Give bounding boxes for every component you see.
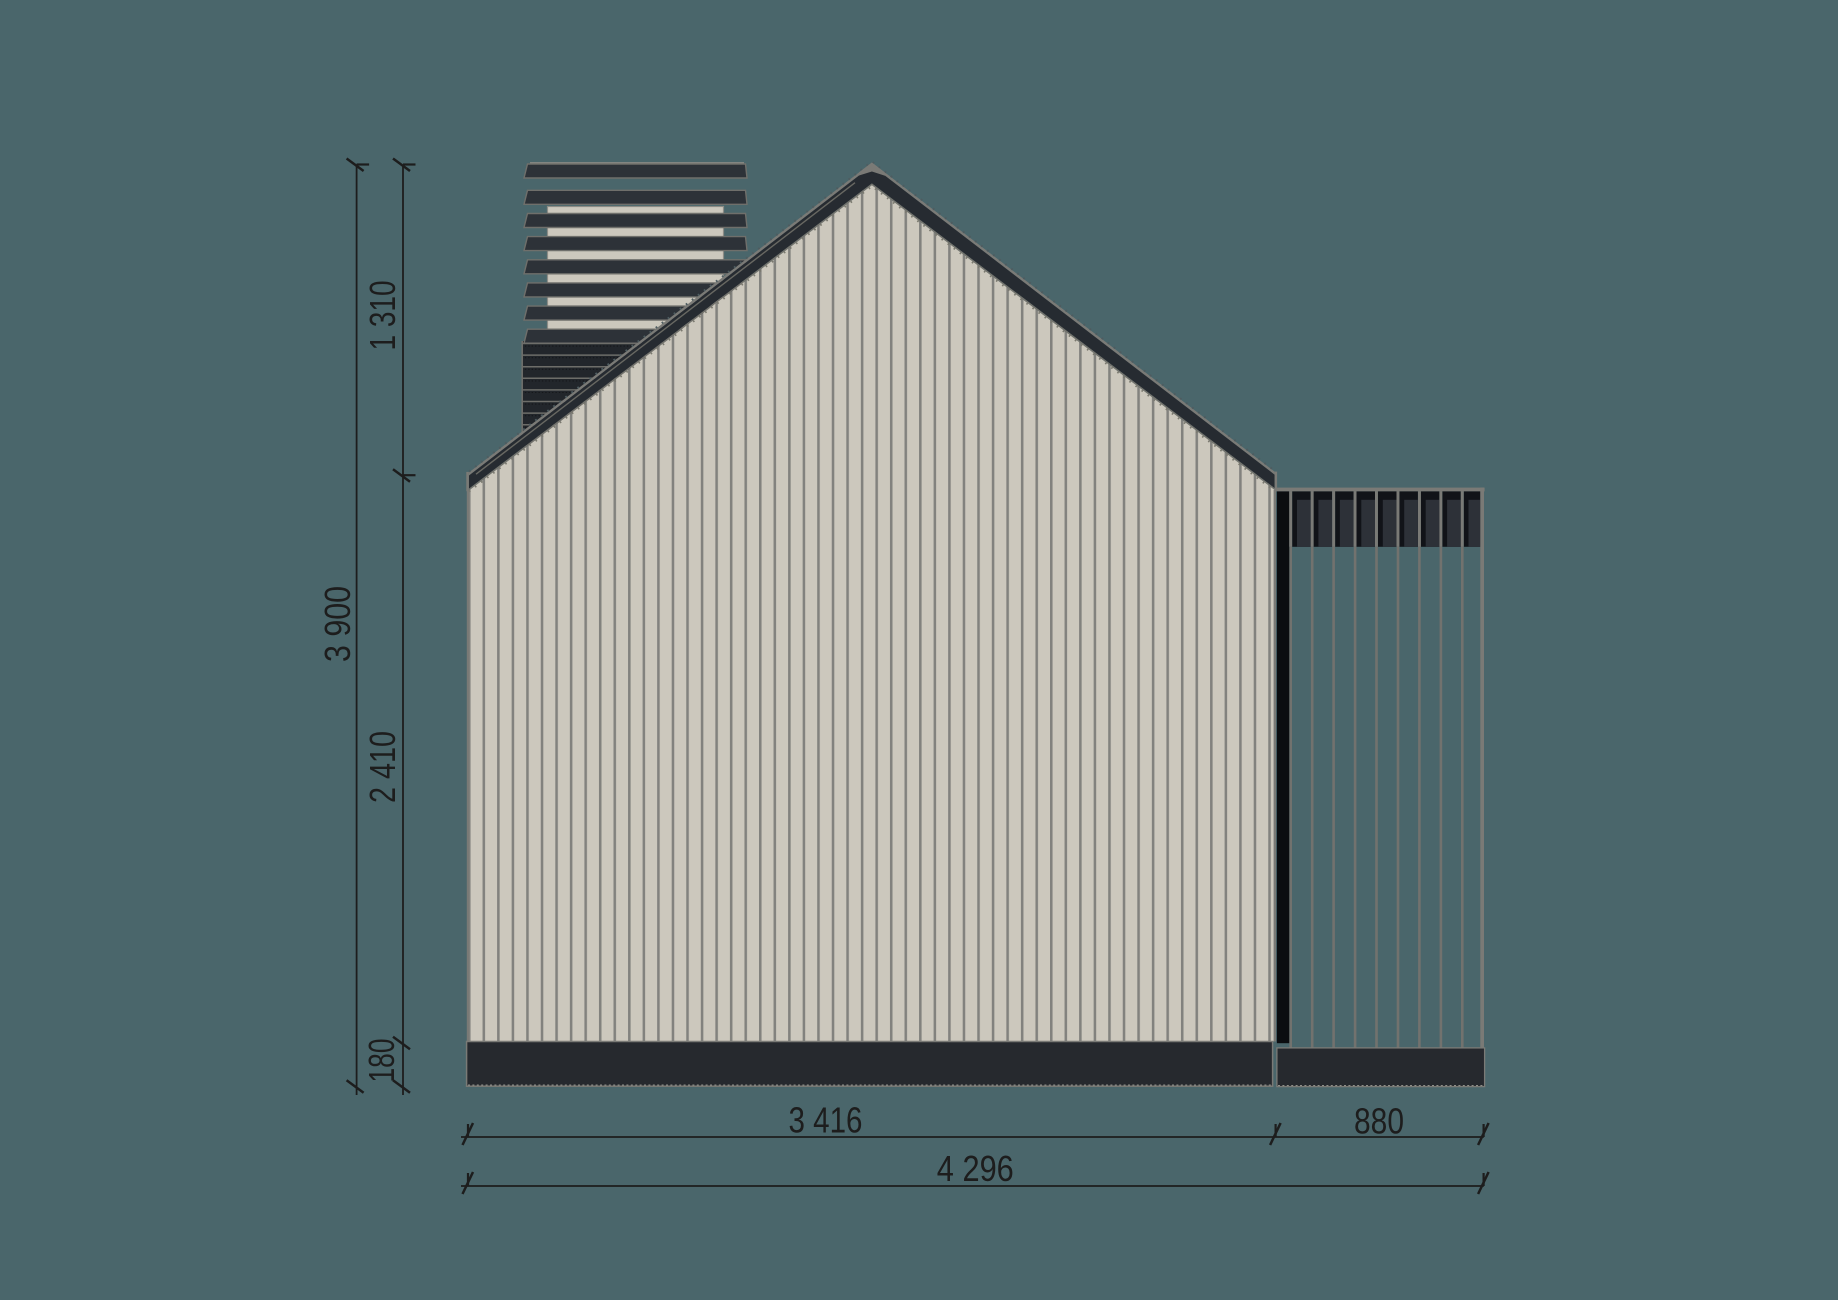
svg-text:3 416: 3 416 [789,1099,863,1140]
svg-text:3 900: 3 900 [317,586,358,662]
svg-text:1 310: 1 310 [362,281,403,351]
svg-text:880: 880 [1354,1101,1404,1142]
svg-text:4 296: 4 296 [937,1148,1014,1189]
svg-text:2 410: 2 410 [362,731,403,803]
svg-text:180: 180 [361,1039,402,1083]
